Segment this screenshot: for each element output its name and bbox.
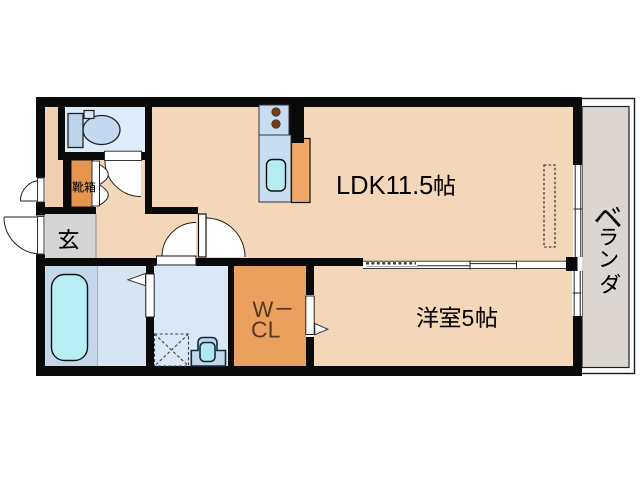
svg-text:CL: CL	[251, 317, 281, 343]
svg-text:5: 5	[462, 305, 475, 331]
svg-text:LDK11.5: LDK11.5	[336, 172, 433, 200]
